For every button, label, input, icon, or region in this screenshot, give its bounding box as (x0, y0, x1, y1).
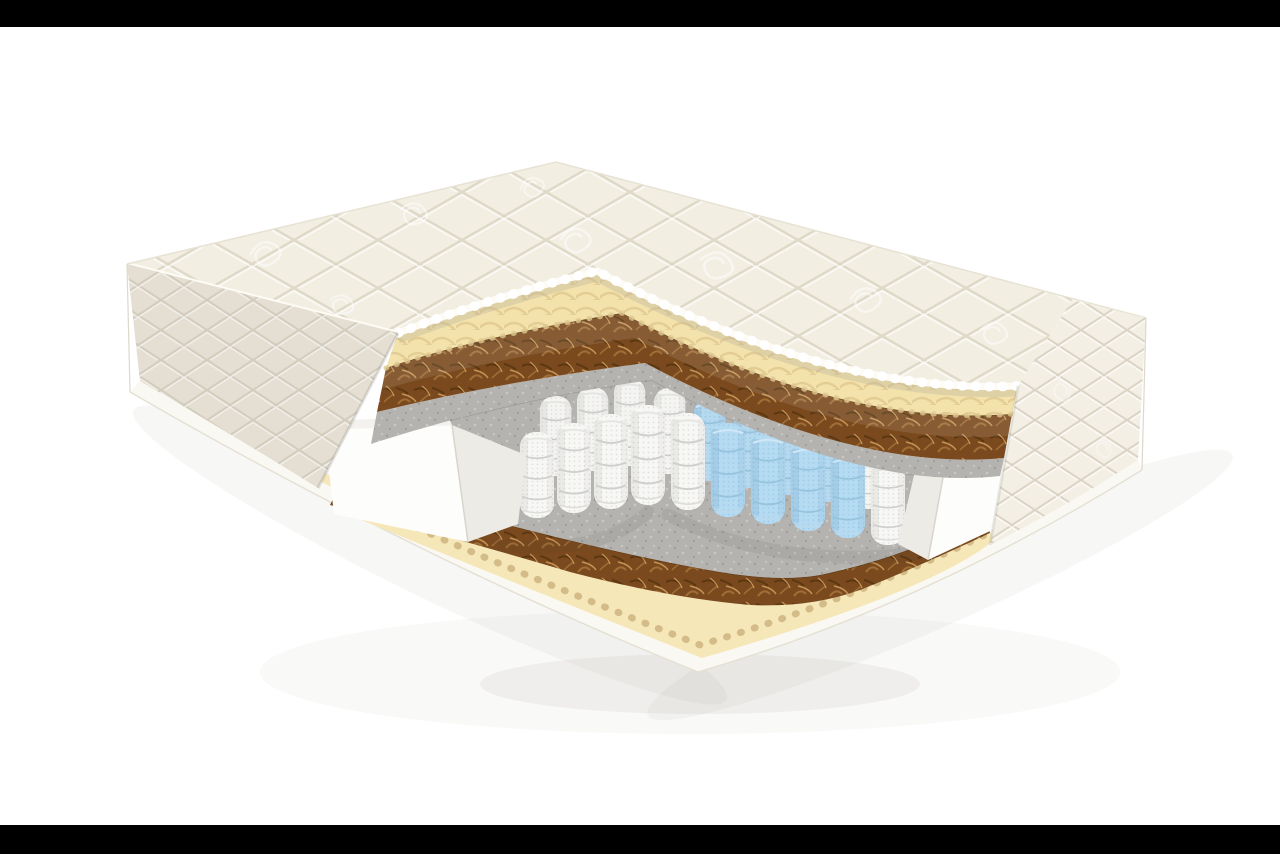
letterbox-top (0, 0, 1280, 27)
comfort-zone-spring (791, 443, 825, 531)
letterbox-bottom (0, 825, 1280, 854)
comfort-zone-spring (831, 453, 865, 538)
pocket-spring (520, 432, 554, 518)
pocket-spring (671, 413, 705, 510)
mattress-cutaway-render (0, 0, 1280, 854)
pocket-spring (557, 423, 591, 513)
pocket-spring (594, 414, 628, 509)
mattress-product-image (0, 0, 1280, 854)
comfort-zone-spring (711, 423, 745, 517)
pocket-spring (871, 463, 905, 545)
comfort-zone-spring (751, 433, 785, 524)
pocket-spring (631, 405, 665, 505)
